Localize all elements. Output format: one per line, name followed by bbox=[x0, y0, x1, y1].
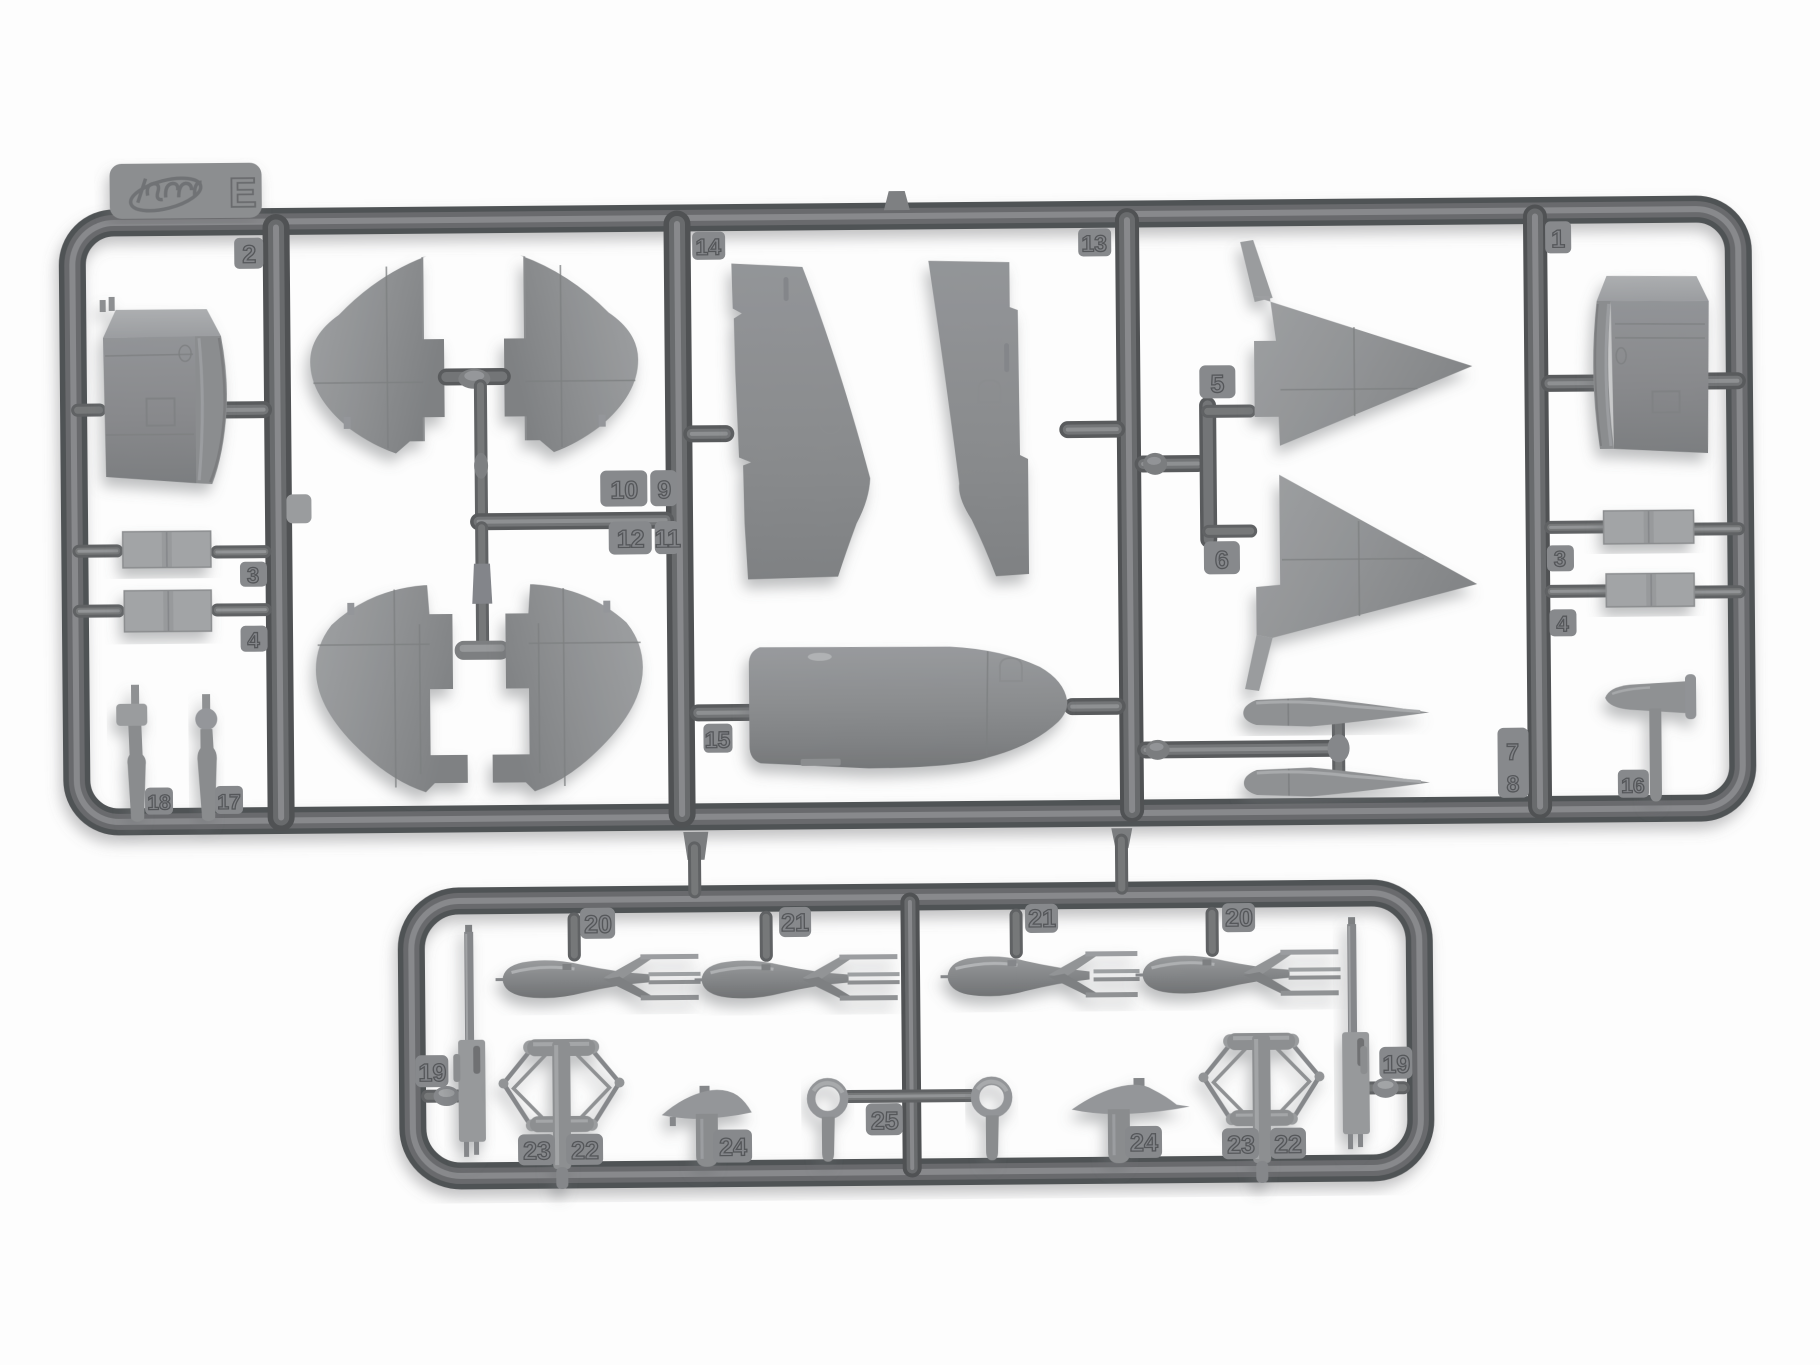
svg-text:13: 13 bbox=[1081, 230, 1107, 256]
svg-text:19: 19 bbox=[1382, 1051, 1410, 1079]
svg-text:25: 25 bbox=[871, 1107, 899, 1135]
svg-text:23: 23 bbox=[523, 1137, 551, 1165]
svg-text:3: 3 bbox=[1554, 546, 1566, 571]
svg-text:23: 23 bbox=[1227, 1131, 1255, 1159]
svg-text:16: 16 bbox=[1621, 775, 1645, 798]
svg-text:24: 24 bbox=[1130, 1129, 1158, 1157]
svg-text:20: 20 bbox=[1225, 904, 1253, 932]
svg-text:2: 2 bbox=[242, 241, 256, 269]
svg-text:20: 20 bbox=[584, 911, 612, 939]
svg-text:6: 6 bbox=[1215, 546, 1229, 574]
svg-text:7: 7 bbox=[1506, 739, 1519, 765]
svg-text:15: 15 bbox=[705, 727, 731, 753]
svg-text:24: 24 bbox=[719, 1133, 747, 1161]
svg-text:E: E bbox=[228, 169, 256, 216]
svg-text:22: 22 bbox=[1274, 1131, 1302, 1159]
svg-text:12: 12 bbox=[617, 525, 645, 553]
svg-text:21: 21 bbox=[781, 909, 809, 937]
svg-text:5: 5 bbox=[1210, 370, 1224, 398]
svg-text:4: 4 bbox=[1556, 611, 1569, 636]
svg-text:14: 14 bbox=[695, 234, 721, 260]
svg-text:11: 11 bbox=[654, 525, 681, 553]
svg-text:10: 10 bbox=[610, 476, 638, 504]
svg-text:1: 1 bbox=[1551, 225, 1565, 253]
svg-text:9: 9 bbox=[657, 476, 671, 504]
svg-text:22: 22 bbox=[571, 1137, 599, 1165]
svg-text:17: 17 bbox=[217, 791, 241, 814]
svg-text:18: 18 bbox=[147, 791, 171, 814]
svg-text:21: 21 bbox=[1028, 905, 1056, 933]
svg-text:3: 3 bbox=[247, 563, 259, 588]
svg-text:8: 8 bbox=[1506, 771, 1519, 797]
svg-text:19: 19 bbox=[418, 1059, 446, 1087]
svg-text:4: 4 bbox=[247, 628, 260, 653]
